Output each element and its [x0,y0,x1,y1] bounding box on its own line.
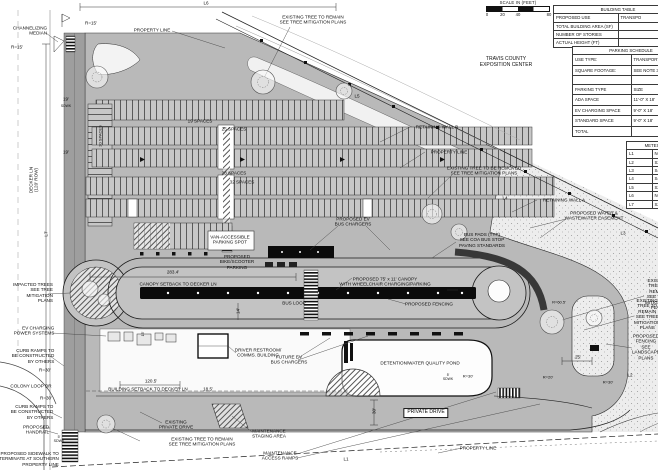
crosswalk-colony [62,430,78,462]
ev-power-equipment [137,334,151,345]
line-table: METES L1N62° L2S28° L3S45° L4S45° L5S22°… [626,141,658,209]
crosswalk-bus-loop [304,270,318,320]
plan-svg [0,0,658,470]
scale-bar: SCALE IN (FEET) 0 20 40 80 [483,0,553,18]
van-accessible-spot [208,231,254,250]
line-table-title: METES [627,142,658,150]
east-loop-island [572,296,614,376]
building-table: BUILDING TABLE PROPOSED USETRANSPO TOTAL… [553,5,658,48]
scale-bar-ticks: 0 20 40 80 [487,12,549,18]
building-table-title: BUILDING TABLE [554,6,658,14]
scale-bar-title: SCALE IN (FEET) [483,0,553,5]
channelizing-median-shape [54,36,64,52]
parking-schedule-title: PARKING SCHEDULE [573,47,658,55]
decker-ln-road [18,10,70,470]
crosswalk-decker [66,36,75,52]
site-plan-canvas: CHANNELIZING MEDIANR=15'R=15'PROPERTY LI… [0,0,658,470]
parking-schedule-table: PARKING SCHEDULE USE TYPE:TRANSPORTA SQU… [572,46,658,137]
